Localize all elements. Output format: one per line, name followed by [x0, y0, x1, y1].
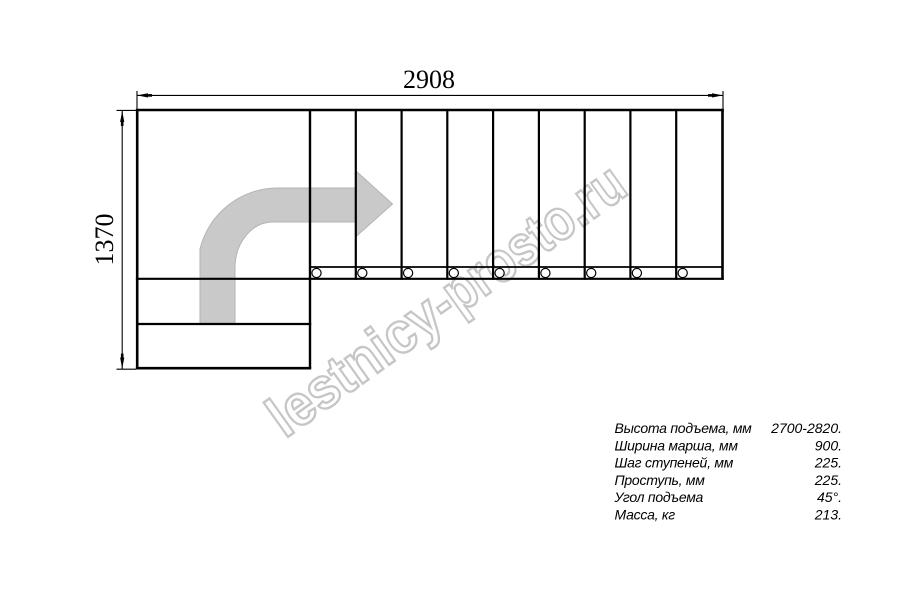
svg-text:213.: 213.	[814, 507, 842, 523]
svg-text:Масса, кг: Масса, кг	[615, 507, 676, 523]
svg-text:Шаг ступеней, мм: Шаг ступеней, мм	[615, 455, 734, 471]
svg-text:Проступь, мм: Проступь, мм	[615, 472, 706, 488]
svg-text:Угол подъема: Угол подъема	[614, 489, 704, 505]
svg-text:45°.: 45°.	[817, 489, 842, 505]
svg-text:225.: 225.	[814, 455, 842, 471]
svg-text:2700-2820.: 2700-2820.	[770, 420, 842, 436]
svg-text:Ширина марша, мм: Ширина марша, мм	[615, 437, 739, 453]
svg-text:2908: 2908	[403, 65, 455, 94]
svg-text:900.: 900.	[815, 437, 842, 453]
svg-text:225.: 225.	[814, 472, 842, 488]
svg-text:1370: 1370	[90, 214, 119, 266]
svg-text:Высота подъема, мм: Высота подъема, мм	[615, 420, 753, 436]
